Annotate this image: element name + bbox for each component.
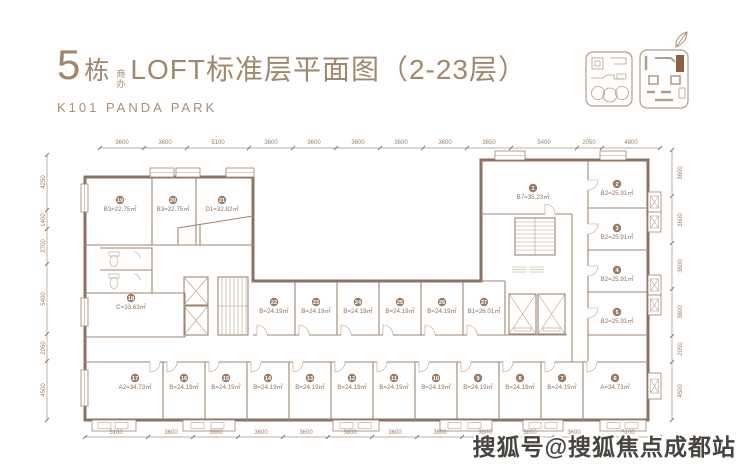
unit-2: 2B2=25.91㎡	[601, 180, 635, 197]
dim-label: 2700	[41, 239, 47, 253]
unit-area: B=24.19㎡	[343, 307, 373, 315]
dim-label: 3600	[394, 140, 408, 146]
unit-number: 19	[117, 198, 123, 204]
building-suffix: 栋	[84, 59, 109, 84]
unit-number: 11	[391, 376, 397, 382]
dim-label: 5100	[211, 140, 225, 146]
usage-badge-line2: 办	[116, 80, 125, 90]
dim-label: 3600	[678, 305, 684, 319]
unit-number: 5	[615, 310, 618, 316]
unit-area: B=24.19㎡	[169, 383, 199, 391]
dim-label: 3600	[678, 166, 684, 180]
unit-25: 25B=24.19㎡	[385, 298, 415, 315]
dim-label: 3600	[343, 430, 357, 436]
unit-number: 27	[481, 300, 487, 306]
unit-number: 2	[615, 182, 618, 188]
unit-number: 7	[560, 376, 563, 382]
unit-number: 23	[313, 300, 319, 306]
dim-label: 3600	[351, 140, 365, 146]
unit-number: 26	[439, 300, 445, 306]
unit-number: 10	[433, 376, 439, 382]
unit-area: B2=25.91㎡	[601, 275, 635, 283]
keymap-highlight-building5	[676, 55, 684, 72]
watermark: 搜狐号@搜狐焦点成都站	[473, 428, 736, 462]
unit-19: 19B3=22.75㎡	[104, 196, 138, 213]
elevator-icon	[509, 294, 565, 334]
unit-15: 15B=24.19㎡	[211, 374, 241, 391]
unit-number: 15	[223, 376, 229, 382]
dim-label: 2050	[678, 342, 684, 356]
dim-label: 4250	[41, 175, 47, 189]
dim-label: 4500	[678, 384, 684, 398]
dim-label: 3600	[433, 430, 447, 436]
unit-area: B=24.19㎡	[259, 307, 289, 315]
dimension-left: 4250 1400 2700 5400 2050 4500	[41, 153, 49, 422]
stairs-icon	[515, 218, 555, 255]
unit-area: D1=32.82㎡	[205, 205, 239, 213]
unit-area: B2=25.91㎡	[601, 233, 635, 241]
unit-area: B7=35.23㎡	[517, 193, 551, 201]
unit-12: 12B=24.19㎡	[337, 374, 367, 391]
project-name: K101 PANDA PARK	[57, 100, 527, 115]
unit-area: B=24.19㎡	[253, 383, 283, 391]
unit-number: 17	[132, 376, 138, 382]
dim-label: 3600	[158, 140, 172, 146]
unit-area: B=24.19㎡	[379, 383, 409, 391]
unit-area: B=24.19㎡	[385, 307, 415, 315]
unit-23: 23B=24.19㎡	[301, 298, 331, 315]
unit-10: 10B=24.19㎡	[421, 374, 451, 391]
unit-3: 3B2=25.91㎡	[601, 224, 635, 241]
dim-label: 3600	[264, 140, 278, 146]
unit-number: 8	[518, 376, 521, 382]
unit-area: B1=26.01㎡	[468, 307, 502, 315]
unit-1: 1B7=35.23㎡	[517, 184, 551, 201]
title-block: 5 栋 商 办 LOFT标准层平面图（2-23层） K101 PANDA PAR…	[57, 44, 527, 115]
unit-number: 16	[181, 376, 187, 382]
dim-label: 5100	[109, 430, 123, 436]
unit-6: 6A=34.73㎡	[600, 374, 630, 391]
north-arrow-icon	[676, 32, 687, 47]
floorplan-page: { "header": { "building_number": "5", "b…	[0, 0, 740, 464]
unit-number: 18	[128, 296, 134, 302]
dim-label: 1400	[41, 213, 47, 227]
unit-13: 13B=24.19㎡	[295, 374, 325, 391]
dim-label: 3600	[254, 430, 268, 436]
floor-plan: 3600 3600 5100 3600 3600 3600 3600 3600 …	[0, 118, 740, 458]
dim-label: 3600	[678, 213, 684, 227]
unit-18: 18C=33.63㎡	[116, 294, 147, 311]
unit-area: B=24.19㎡	[547, 383, 577, 391]
unit-27: 27B1=26.01㎡	[468, 298, 502, 315]
dim-label: 3600	[388, 430, 402, 436]
unit-area: B=24.19㎡	[427, 307, 457, 315]
ac-platforms-right	[648, 192, 661, 399]
unit-area: B=24.19㎡	[505, 383, 535, 391]
unit-area: B=24.19㎡	[463, 383, 493, 391]
unit-area: B2=25.91㎡	[601, 317, 635, 325]
unit-4: 4B2=25.91㎡	[601, 266, 635, 283]
unit-26: 26B=24.19㎡	[427, 298, 457, 315]
site-keymap	[583, 30, 703, 114]
unit-number: 25	[397, 300, 403, 306]
unit-area: B2=25.91㎡	[601, 189, 635, 197]
dim-label: 5400	[537, 140, 551, 146]
dimension-top: 3600 3600 5100 3600 3600 3600 3600 3600 …	[98, 140, 662, 150]
dim-label: 2050	[41, 341, 47, 355]
dim-label: 3600	[307, 140, 321, 146]
unit-number: 14	[265, 376, 272, 382]
unit-area: B=24.19㎡	[337, 383, 367, 391]
unit-area: B=24.19㎡	[421, 383, 451, 391]
unit-area: A2=34.73㎡	[119, 383, 153, 391]
unit-7: 7B=24.19㎡	[547, 374, 577, 391]
dim-label: 4800	[624, 140, 638, 146]
dimension-right: 3600 3600 3600 3600 2050 4500	[670, 148, 684, 422]
unit-number: 1	[531, 186, 534, 192]
unit-number: 6	[613, 376, 616, 382]
dim-label: 3600	[678, 259, 684, 273]
unit-8: 8B=24.19㎡	[505, 374, 535, 391]
unit-area: B=24.19㎡	[295, 383, 325, 391]
dim-label: 3600	[438, 140, 452, 146]
unit-21: 21D1=32.82㎡	[205, 196, 239, 213]
unit-number: 13	[307, 376, 313, 382]
dim-label: 3600	[209, 430, 223, 436]
unit-14: 14B=24.19㎡	[253, 374, 283, 391]
dim-label: 3600	[299, 430, 313, 436]
dim-label: 3600	[164, 430, 178, 436]
unit-number: 9	[476, 376, 479, 382]
unit-number: 21	[219, 198, 225, 204]
dim-label: 3650	[482, 140, 496, 146]
plan-title: LOFT标准层平面图（2-23层）	[130, 56, 527, 84]
unit-area: B3=22.75㎡	[157, 205, 191, 213]
dim-label: 2050	[582, 140, 596, 146]
dim-label: 5400	[41, 292, 47, 306]
unit-11: 11B=24.19㎡	[379, 374, 409, 391]
utility-shaft-labels	[512, 267, 544, 272]
unit-number: 24	[355, 300, 362, 306]
unit-number: 12	[349, 376, 355, 382]
unit-20: 20B3=22.75㎡	[157, 196, 191, 213]
window-bays-top	[150, 151, 626, 177]
dim-label: 3600	[115, 140, 129, 146]
unit-number: 3	[615, 226, 618, 232]
unit-area: C=33.63㎡	[116, 303, 147, 311]
unit-5: 5B2=25.91㎡	[601, 308, 635, 325]
elevator-icon	[184, 277, 208, 335]
unit-area: A=34.73㎡	[600, 383, 630, 391]
unit-area: B3=22.75㎡	[104, 205, 138, 213]
unit-16: 16B=24.19㎡	[169, 374, 199, 391]
keymap-block-right	[640, 50, 688, 108]
unit-number: 20	[170, 198, 176, 204]
keymap-block-left	[586, 52, 632, 106]
unit-17: 17A2=34.73㎡	[119, 374, 153, 391]
usage-badge: 商 办	[116, 70, 125, 90]
dim-label: 4500	[41, 383, 47, 397]
unit-number: 22	[271, 300, 277, 306]
unit-area: B=24.19㎡	[301, 307, 331, 315]
unit-24: 24B=24.19㎡	[343, 298, 373, 315]
unit-22: 22B=24.19㎡	[259, 298, 289, 315]
stairs-icon	[218, 277, 248, 335]
unit-9: 9B=24.19㎡	[463, 374, 493, 391]
building-number: 5	[57, 44, 81, 86]
unit-area: B=24.19㎡	[211, 383, 241, 391]
